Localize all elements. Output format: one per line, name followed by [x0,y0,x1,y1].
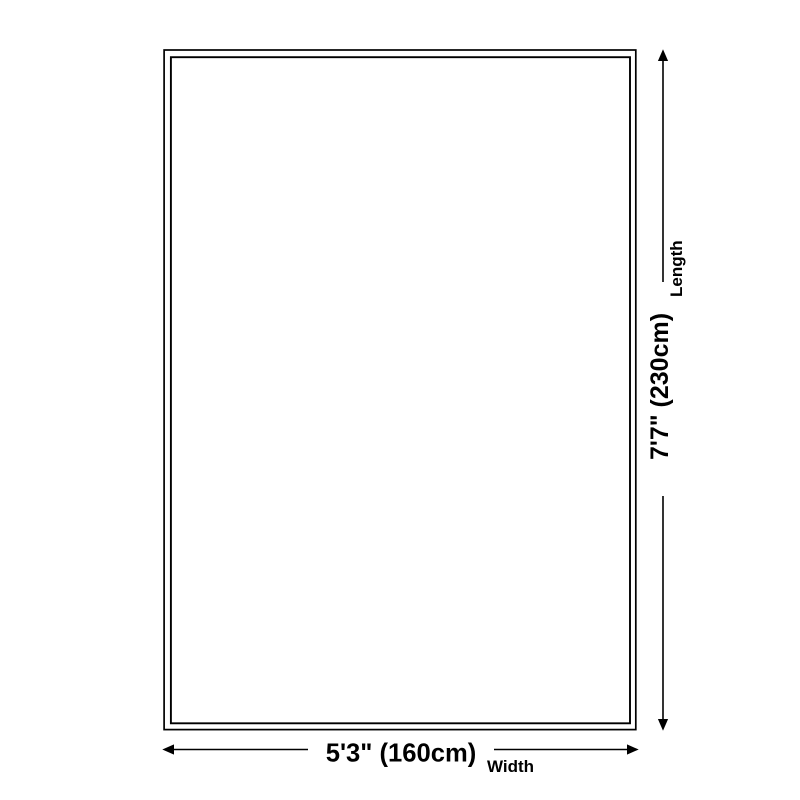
svg-text:7'7" (230cm): 7'7" (230cm) [646,313,674,460]
svg-text:5'3" (160cm): 5'3" (160cm) [326,740,477,768]
svg-text:Width: Width [487,757,534,776]
svg-text:Length: Length [667,240,686,297]
